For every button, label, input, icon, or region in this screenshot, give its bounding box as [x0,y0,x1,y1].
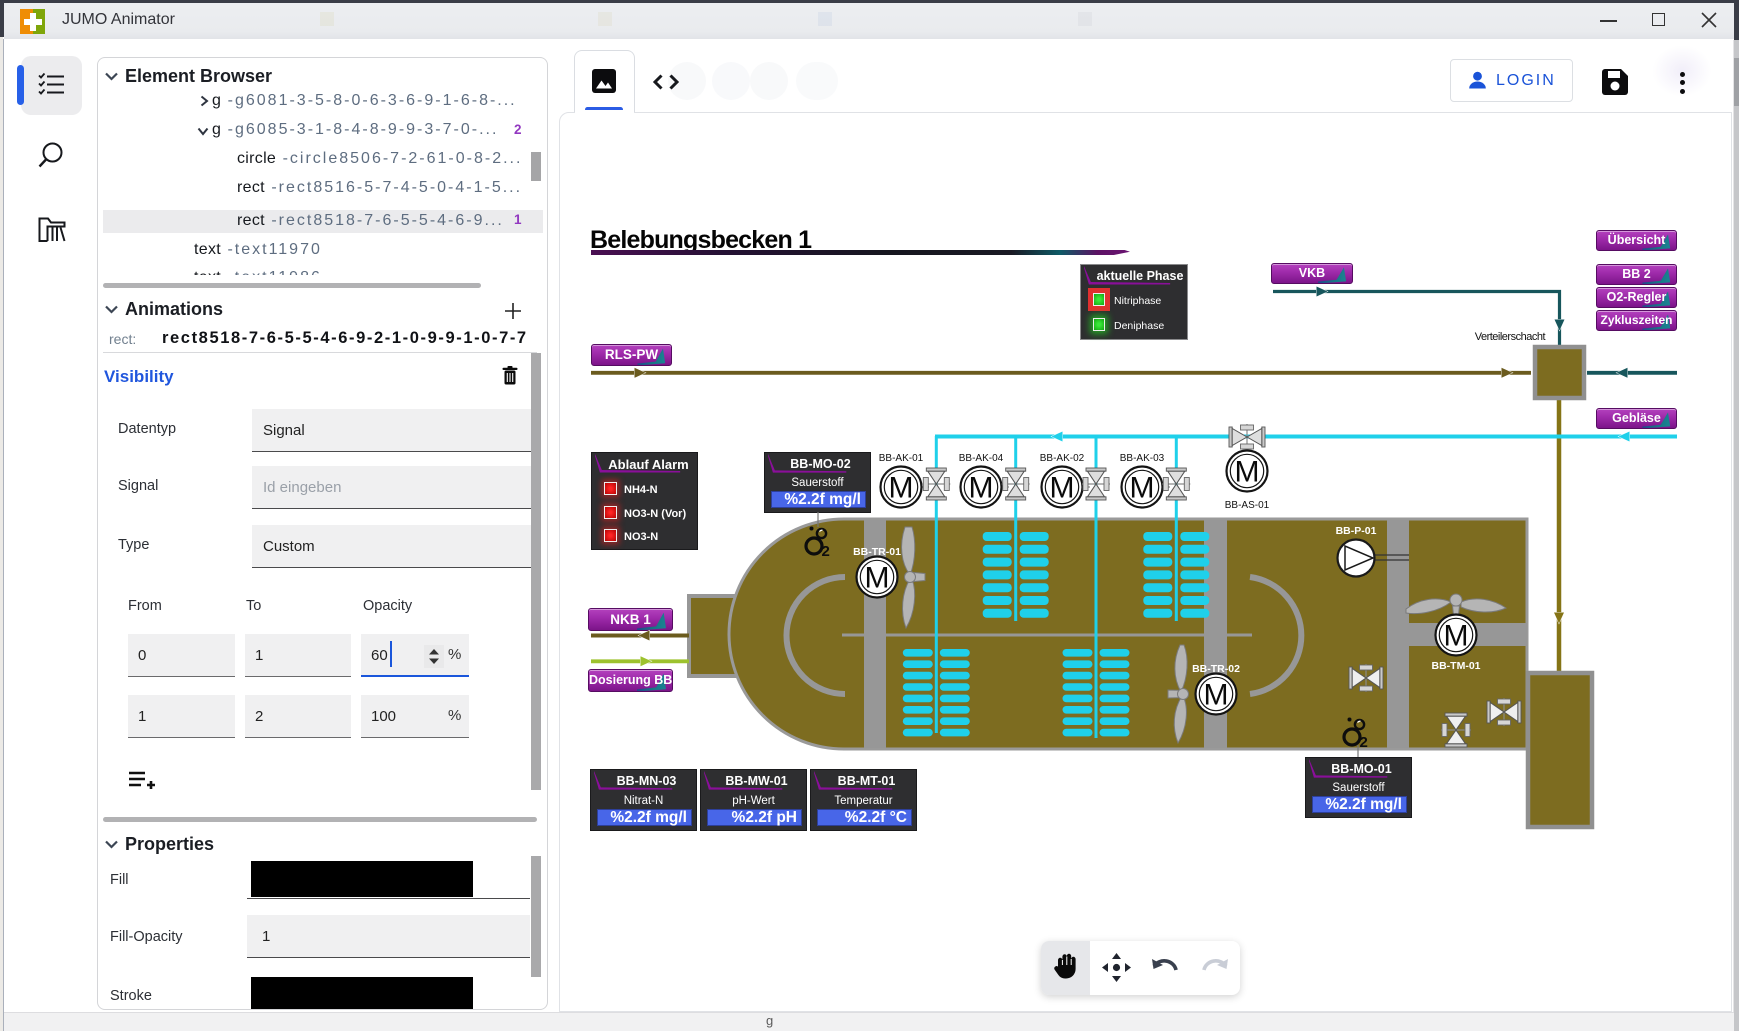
svg-text:2: 2 [1360,734,1368,751]
svg-text:BB-AK-04: BB-AK-04 [959,453,1004,464]
svg-text:M: M [1235,456,1260,489]
svg-text:M: M [889,472,914,505]
svg-text:BB-TM-01: BB-TM-01 [1432,660,1481,672]
svg-text:BB-P-01: BB-P-01 [1336,525,1377,537]
svg-text:M: M [1130,472,1155,505]
svg-text:BB-AK-03: BB-AK-03 [1120,453,1165,464]
svg-text:BB-AS-01: BB-AS-01 [1225,500,1270,511]
svg-text:M: M [1050,472,1075,505]
svg-text:BB-AK-02: BB-AK-02 [1040,453,1085,464]
svg-text:BB-TR-01: BB-TR-01 [853,546,901,558]
svg-text:BB-AK-01: BB-AK-01 [879,453,924,464]
svg-text:Verteilerschacht: Verteilerschacht [1475,331,1546,343]
svg-text:M: M [865,562,890,595]
svg-text:M: M [1204,679,1229,712]
svg-text:2: 2 [822,543,830,560]
svg-text:M: M [969,472,994,505]
svg-text:BB-TR-02: BB-TR-02 [1192,663,1240,675]
svg-text:M: M [1444,620,1469,653]
